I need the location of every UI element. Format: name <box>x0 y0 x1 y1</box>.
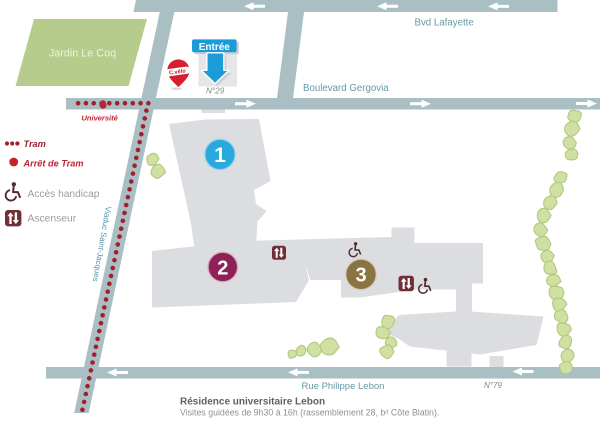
svg-text:Jardin Le Coq: Jardin Le Coq <box>49 48 116 60</box>
svg-text:N°29: N°29 <box>206 87 225 96</box>
svg-text:Résidence universitaire Lebon: Résidence universitaire Lebon <box>180 397 325 408</box>
svg-text:Bvd Lafayette: Bvd Lafayette <box>415 17 474 28</box>
svg-text:Boulevard Gergovia: Boulevard Gergovia <box>303 83 389 94</box>
svg-text:2: 2 <box>217 257 228 279</box>
svg-text:Ascenseur: Ascenseur <box>28 214 77 225</box>
svg-text:Accès handicap: Accès handicap <box>28 189 100 200</box>
svg-text:Université: Université <box>82 113 118 122</box>
svg-text:1: 1 <box>214 144 226 167</box>
svg-text:Rue Philippe Lebon: Rue Philippe Lebon <box>302 381 385 392</box>
svg-text:Visites guidées de 9h30 à 16h: Visites guidées de 9h30 à 16h (rassemble… <box>180 408 439 418</box>
svg-text:Arrêt de Tram: Arrêt de Tram <box>23 159 84 169</box>
svg-text:Entrée: Entrée <box>199 42 231 53</box>
svg-text:N°79: N°79 <box>484 381 502 390</box>
svg-text:3: 3 <box>355 265 366 287</box>
svg-text:Tram: Tram <box>24 139 46 149</box>
